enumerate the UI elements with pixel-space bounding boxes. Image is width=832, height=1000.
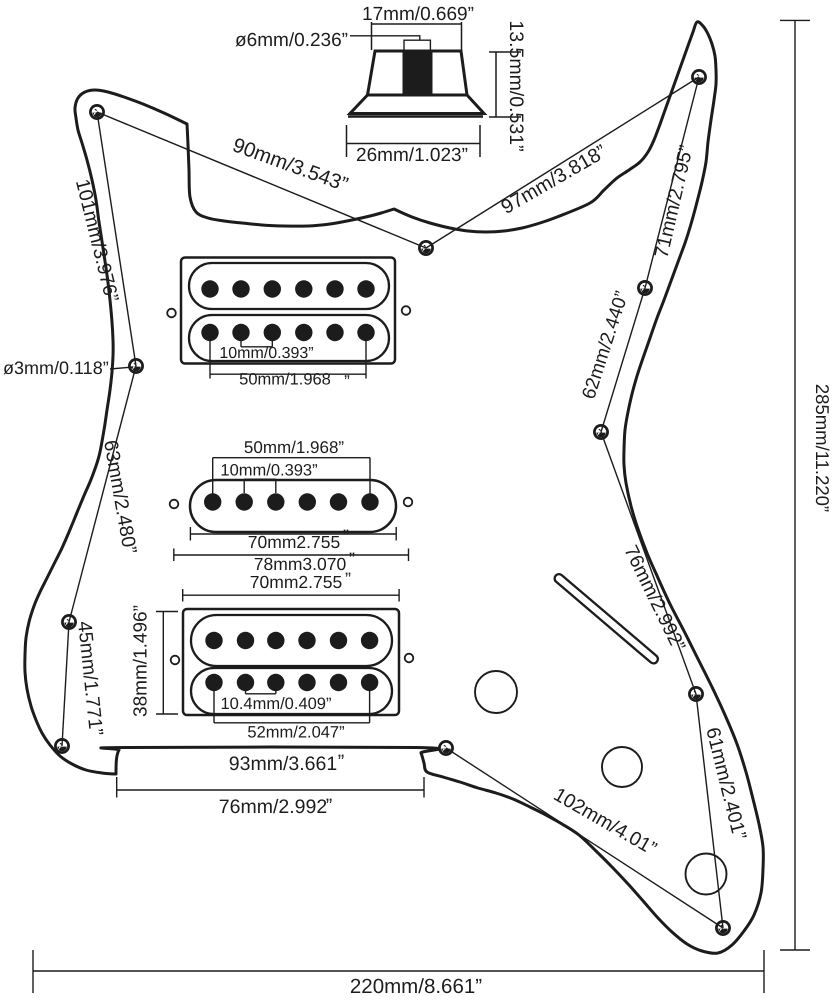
svg-text:78mm3.070: 78mm3.070 bbox=[254, 554, 347, 574]
svg-text:ø3mm/0.118”: ø3mm/0.118” bbox=[3, 358, 109, 378]
svg-text:26mm/1.023”: 26mm/1.023” bbox=[356, 145, 468, 166]
svg-text:38mm/1.496”: 38mm/1.496” bbox=[131, 605, 152, 717]
svg-text:13.5mm/0.531”: 13.5mm/0.531” bbox=[505, 20, 527, 151]
svg-text:52mm/2.047”: 52mm/2.047” bbox=[247, 724, 344, 742]
svg-text:”: ” bbox=[326, 795, 333, 817]
svg-text:”: ” bbox=[345, 569, 351, 589]
svg-text:70mm2.755: 70mm2.755 bbox=[250, 572, 342, 592]
svg-text:93mm/3.661: 93mm/3.661 bbox=[229, 753, 337, 775]
svg-text:10mm/0.393”: 10mm/0.393” bbox=[219, 345, 313, 362]
svg-text:76mm/2.992: 76mm/2.992 bbox=[219, 796, 327, 818]
svg-text:285mm/11.220”: 285mm/11.220” bbox=[812, 384, 832, 512]
svg-text:70mm2.755: 70mm2.755 bbox=[248, 532, 340, 552]
svg-text:10.4mm/0.409”: 10.4mm/0.409” bbox=[221, 695, 332, 713]
svg-text:”: ” bbox=[344, 372, 350, 391]
svg-text:10mm/0.393”: 10mm/0.393” bbox=[220, 462, 317, 480]
svg-text:220mm/8.661”: 220mm/8.661” bbox=[350, 975, 482, 998]
svg-text:”: ” bbox=[343, 526, 349, 546]
svg-text:50mm/1.968: 50mm/1.968 bbox=[239, 371, 331, 389]
svg-text:ø6mm/0.236”: ø6mm/0.236” bbox=[235, 30, 348, 51]
svg-text:”: ” bbox=[338, 751, 345, 773]
svg-text:50mm/1.968”: 50mm/1.968” bbox=[244, 438, 344, 457]
svg-text:17mm/0.669”: 17mm/0.669” bbox=[362, 4, 474, 25]
svg-text:”: ” bbox=[349, 549, 355, 569]
